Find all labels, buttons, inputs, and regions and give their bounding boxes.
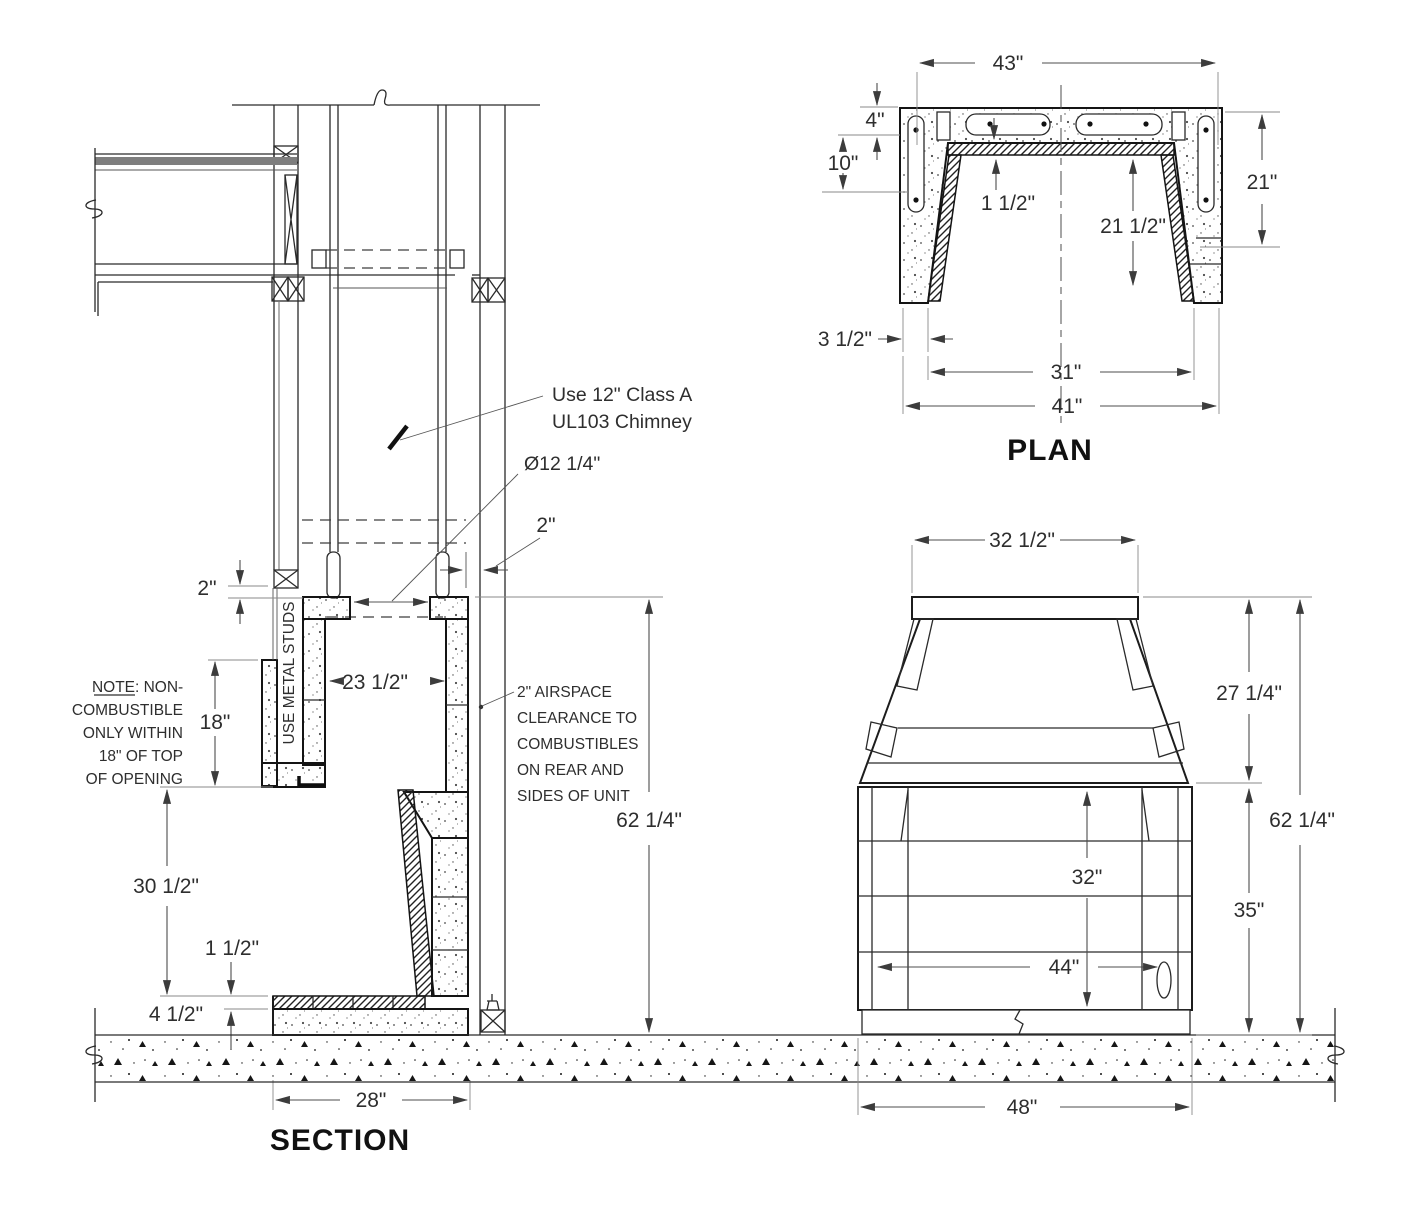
dim-elev-base-height: 35" [1234,899,1265,922]
chimney-note: Use 12" Class A UL103 Chimney [389,384,692,449]
top-cap [912,597,1138,619]
leader-tick [389,426,407,449]
section-title: SECTION [270,1124,410,1157]
dim-opening-height: 30 1/2" [133,875,199,898]
dim-hearth-pad-height: 4 1/2" [149,1003,203,1026]
plan-title: PLAN [1007,434,1093,467]
leveling-bolt-icon [487,994,499,1010]
dim-elev-hood-height: 27 1/4" [1216,682,1282,705]
noncomb-note-word: NOTE [92,679,135,696]
rear-cap-block [430,597,468,619]
noncombustible-note: NOTE : NON- COMBUSTIBLE ONLY WITHIN 18" … [72,679,183,788]
dim-noncomb-height: 18" [200,711,231,734]
dim-plan-inner-depth: 21 1/2" [1100,215,1166,238]
hood [860,619,1188,783]
dim-plan-liner: 1 1/2" [981,192,1035,215]
fire-blocking [272,146,505,1032]
chimney-pipe [327,105,449,598]
dim-chase-inner-width: 23 1/2" [342,671,408,694]
dim-elev-opening-height: 32" [1072,866,1103,889]
airspace-note-line5: SIDES OF UNIT [517,788,630,805]
dim-plan-outer-width: 41" [1052,395,1083,418]
hearth-pad [273,1009,468,1035]
dim-plan-front-wall: 3 1/2" [818,328,872,351]
hearth-firebrick [273,996,425,1009]
floor-sheathing [95,157,297,165]
chimney-note-line1: Use 12" Class A [552,384,692,406]
front-cap-block [303,597,350,619]
dim-firebrick-thickness: 1 1/2" [205,937,259,960]
elevation-view: 32 1/2" 27 1/4" 35" 62 1/4" 32" 44" [858,529,1335,1119]
drawing-canvas: 2" 18" 23 1/2" 30 1/2" 1 1/2" 4 1/2" [0,0,1426,1210]
chase-framing [272,105,505,1035]
plan-view: 43" 4" 10" 21" 1 1/2" 21 1/2" [818,52,1280,467]
dim-flue-diameter: Ø12 1/4" [524,453,600,475]
airspace-note-line3: COMBUSTIBLES [517,736,638,753]
ceiling-line [232,90,540,105]
noncomb-note-line5: OF OPENING [86,771,183,788]
floor-assembly [86,148,480,316]
break-symbol [86,200,102,218]
airspace-note-line2: CLEARANCE TO [517,710,637,727]
noncomb-note-line3: ONLY WITHIN [83,725,183,742]
break-symbol [374,90,390,105]
noncomb-note-line2: COMBUSTIBLE [72,702,183,719]
metal-studs-note: USE METAL STUDS [281,602,298,745]
corner-joint-notch [1172,112,1185,140]
chimney-note-line2: UL103 Chimney [552,411,692,433]
dim-plan-side-length: 21" [1247,171,1278,194]
dim-elev-overall-height: 62 1/4" [1269,809,1335,832]
dim-elev-top-width: 32 1/2" [989,529,1055,552]
dim-plan-rear-wall: 4" [865,109,884,132]
corner-joint-notch [937,112,950,140]
dim-unit-depth: 28" [356,1089,387,1112]
dim-plan-side-depth: 10" [828,152,859,175]
dim-section-overall-height: 62 1/4" [616,809,682,832]
noncomb-note-line4: 18" OF TOP [99,748,183,765]
firestop-spacer [312,250,464,268]
section-view: 2" 18" 23 1/2" 30 1/2" 1 1/2" 4 1/2" [72,90,692,1157]
base-plinth [862,1010,1190,1034]
airspace-note: 2" AIRSPACE CLEARANCE TO COMBUSTIBLES ON… [479,684,639,805]
dim-elev-opening-width: 44" [1049,956,1080,979]
anchor-plate-collar [436,552,449,598]
metal-stud-lines [273,588,277,660]
dim-elev-overall-width: 48" [1007,1096,1038,1119]
rear-lower-block [432,838,468,996]
airspace-note-line1: 2" AIRSPACE [517,684,612,701]
dim-plan-overall-top: 43" [993,52,1024,75]
noncomb-note-line1: : NON- [135,679,183,696]
dim-airspace-gap: 2" [536,514,555,537]
anchor-plate-collar [327,552,340,598]
dim-plan-inner-width: 31" [1051,361,1082,384]
dim-section-top-gap: 2" [197,577,216,600]
noncombustible-board [262,660,277,786]
fireplace-installation-drawing: 2" 18" 23 1/2" 30 1/2" 1 1/2" 4 1/2" [0,0,1426,1210]
airspace-note-line4: ON REAR AND [517,762,624,779]
front-wall-block [303,619,325,765]
